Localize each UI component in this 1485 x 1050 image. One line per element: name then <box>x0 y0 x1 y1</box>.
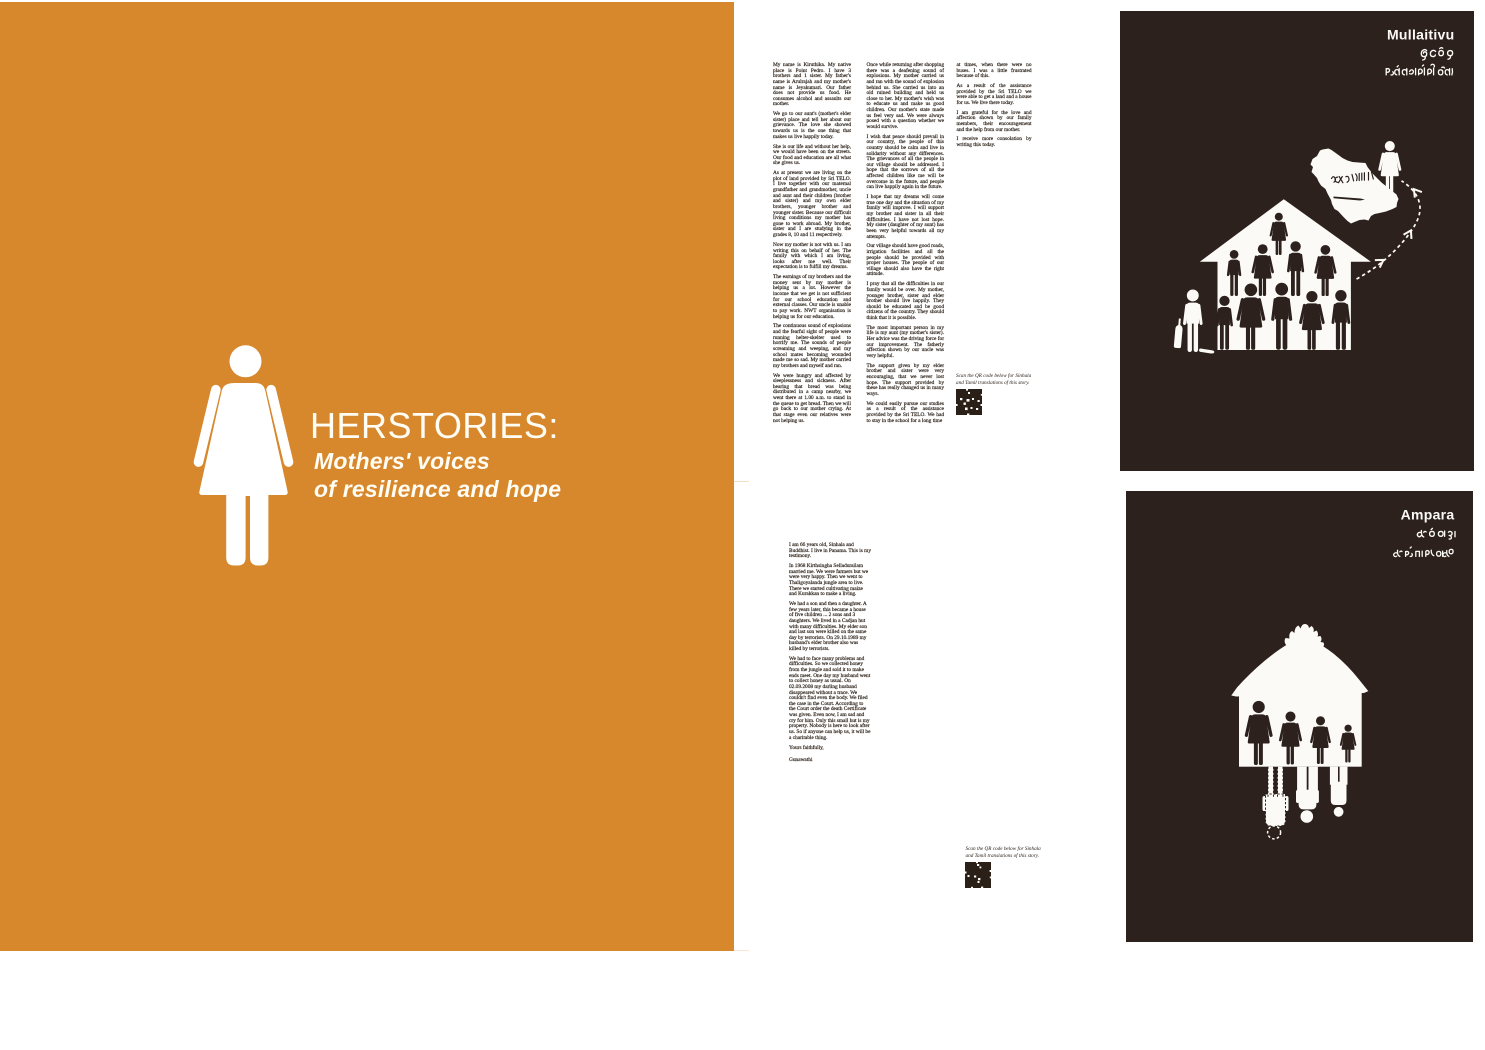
svg-text:Ampara: Ampara <box>1400 507 1454 523</box>
svg-text:Mullaitivu: Mullaitivu <box>1386 27 1454 43</box>
